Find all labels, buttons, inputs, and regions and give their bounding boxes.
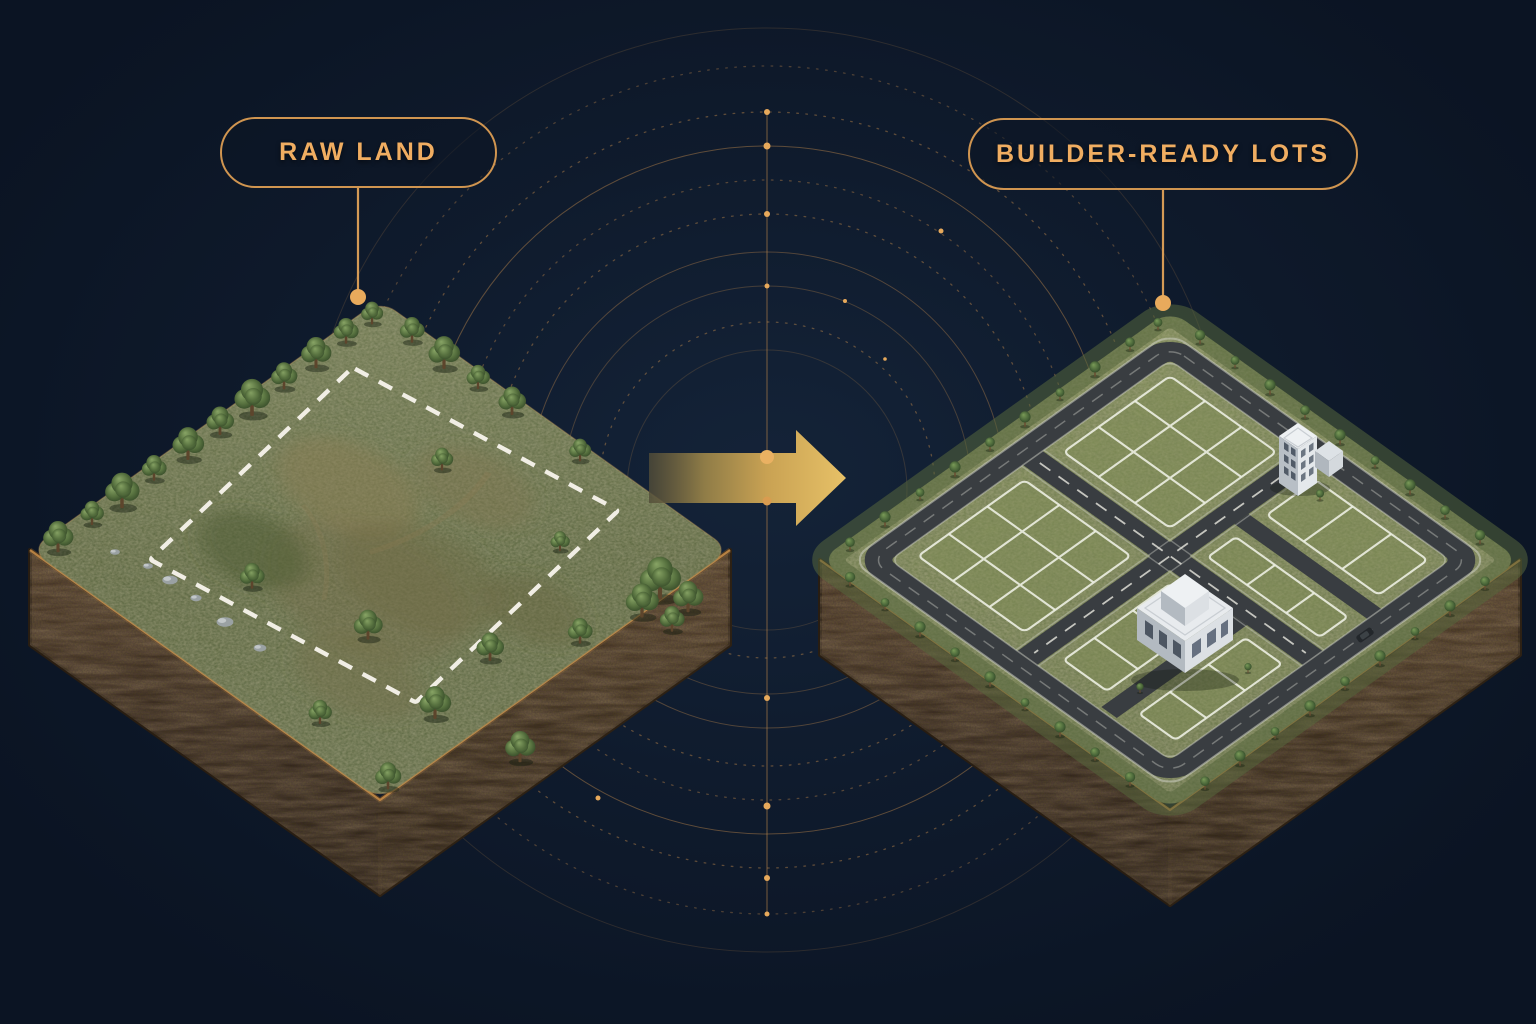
grass-top-right [820,310,1520,810]
infographic-canvas: RAW LAND BUILDER-READY LOTS [0,0,1536,1024]
raw-land-illustration [20,280,780,980]
grass-top-left [30,300,730,800]
raw-land-label: RAW LAND [279,138,438,167]
raw-land-label-pill: RAW LAND [220,117,497,188]
builder-ready-lots-illustration [800,290,1536,990]
builder-ready-lots-label: BUILDER-READY LOTS [996,140,1330,169]
builder-ready-lots-label-pill: BUILDER-READY LOTS [968,118,1358,190]
